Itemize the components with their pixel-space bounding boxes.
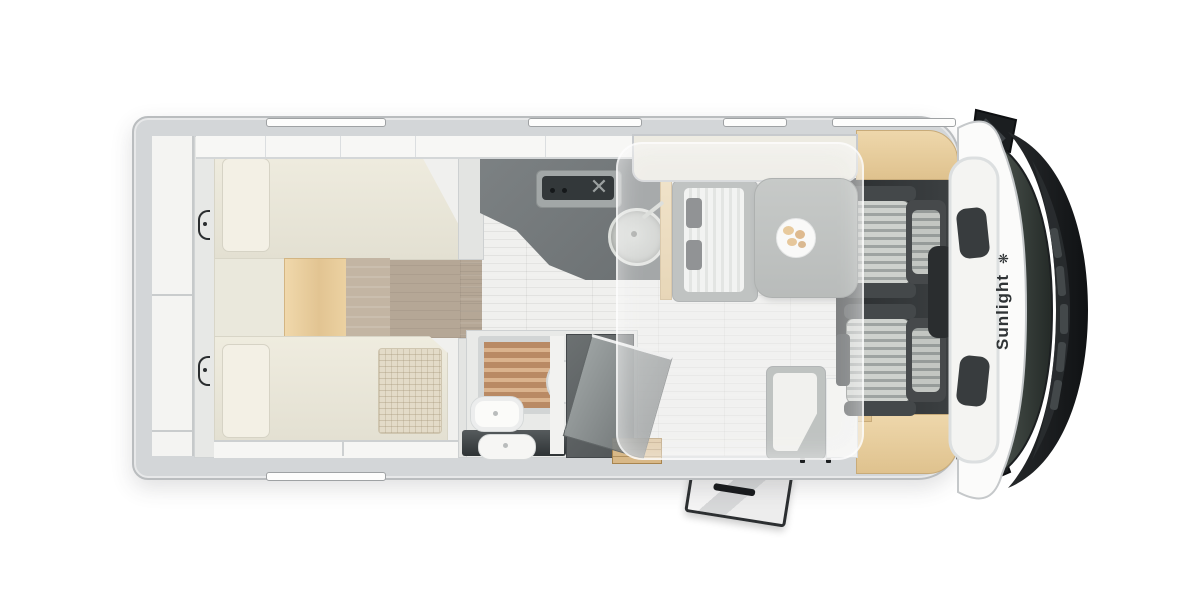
basin-drain <box>493 411 498 416</box>
lid-detail <box>503 443 508 448</box>
reading-lamp-icon <box>198 356 210 386</box>
stove-knob <box>562 188 567 193</box>
vehicle-front: Sunlight ❋ <box>940 100 1120 520</box>
motorhome-floorplan: ✕ <box>0 0 1200 600</box>
door-handle <box>713 483 756 496</box>
cab-roof-contour <box>950 158 998 462</box>
cabinet-divider <box>265 136 266 157</box>
rear-storage-shelf <box>152 136 194 456</box>
logo-flower-icon: ❋ <box>997 253 1012 264</box>
bed-frame <box>214 440 460 458</box>
roof-window-strip <box>723 118 787 127</box>
roof-window-strip <box>266 118 386 127</box>
cabinet-divider <box>545 136 546 157</box>
cab-window-slot <box>955 207 990 260</box>
cabinet-divider <box>415 136 416 157</box>
pillow <box>222 344 270 438</box>
center-chest <box>214 258 286 340</box>
bed-frame-divider <box>342 440 344 456</box>
shelf-divider <box>152 294 192 296</box>
blanket <box>378 348 442 434</box>
dropdown-bed-overlay <box>616 142 864 460</box>
wood-step-panel <box>284 258 348 340</box>
roof-window-strip <box>266 472 386 481</box>
cabinet-divider <box>340 136 341 157</box>
roof-window-strip <box>528 118 642 127</box>
cab-window-slot <box>955 355 990 408</box>
roof-window-strip <box>832 118 956 127</box>
pillow <box>222 158 270 252</box>
reading-lamp-icon <box>198 210 210 240</box>
stove-knob <box>550 188 555 193</box>
sunlight-logo: Sunlight <box>993 274 1012 350</box>
bathroom-wall-column <box>550 336 564 454</box>
shelf-divider <box>152 430 192 432</box>
bedroom-step <box>346 258 390 338</box>
stove-grate-icon: ✕ <box>586 174 612 200</box>
overhead-cabinets <box>196 136 632 159</box>
